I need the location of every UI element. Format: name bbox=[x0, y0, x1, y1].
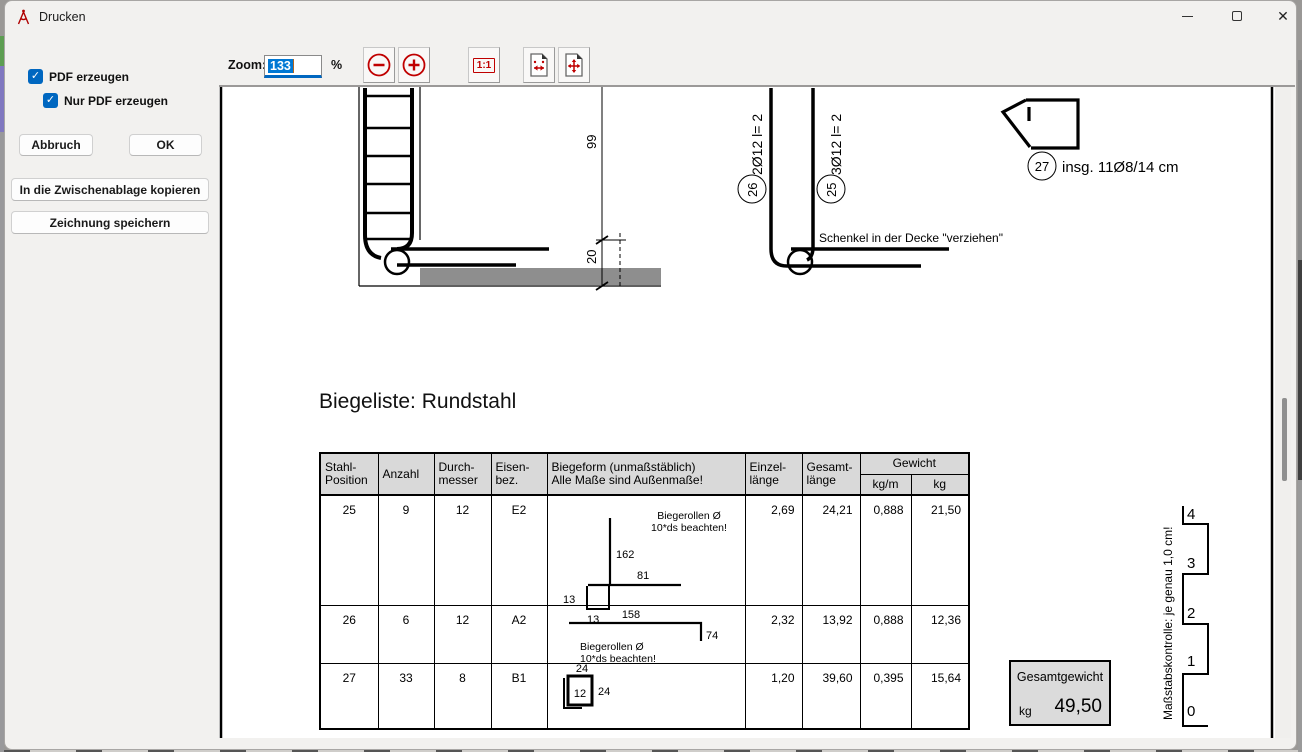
scale-tick: 3 bbox=[1187, 555, 1195, 572]
position-25-circle bbox=[817, 175, 845, 203]
close-icon: ✕ bbox=[1277, 8, 1289, 25]
biegeform-cell bbox=[547, 495, 745, 605]
app-icon bbox=[15, 8, 32, 27]
table-row: 27 33 8 B1 1,20 39,60 0,395 15,64 bbox=[320, 663, 969, 729]
zoom-input[interactable]: 133 bbox=[264, 55, 322, 78]
header-stahl-position: Stahl-Position bbox=[320, 453, 378, 495]
fit-width-button[interactable] bbox=[523, 47, 555, 83]
background-app-right3 bbox=[1298, 480, 1302, 752]
fit-page-icon bbox=[562, 51, 586, 79]
scale-control-steps bbox=[1183, 506, 1208, 726]
total-weight-value: 49,50 bbox=[1054, 696, 1102, 718]
window-title: Drucken bbox=[39, 10, 86, 24]
minimize-button[interactable] bbox=[1167, 1, 1207, 31]
dim-20-label: 20 bbox=[584, 250, 599, 264]
close-button[interactable]: ✕ bbox=[1263, 1, 1297, 31]
one-to-one-icon: 1:1 bbox=[473, 58, 495, 73]
header-kg-m: kg/m bbox=[860, 474, 911, 495]
header-gewicht: Gewicht bbox=[860, 453, 969, 474]
position-27-circle bbox=[1028, 152, 1056, 180]
position-26-label: 2Ø12 l= 2 bbox=[749, 114, 765, 175]
vertical-scrollbar[interactable] bbox=[1275, 87, 1291, 738]
actual-size-button[interactable]: 1:1 bbox=[468, 47, 500, 83]
position-25-label: 3Ø12 l= 2 bbox=[828, 114, 844, 175]
print-preview-area: Biegeliste: Rundstahl Stahl-Position Anz… bbox=[219, 87, 1275, 738]
zoom-value: 133 bbox=[268, 59, 293, 73]
zoom-label: Zoom: bbox=[228, 58, 266, 72]
ok-button[interactable]: OK bbox=[129, 134, 202, 156]
position-26-circle bbox=[738, 175, 766, 203]
dimension-lines bbox=[596, 87, 626, 290]
rebar-bars bbox=[771, 88, 949, 274]
zoom-in-icon bbox=[401, 52, 427, 78]
table-header: Stahl-Position Anzahl Durch-messer Eisen… bbox=[320, 453, 969, 495]
copy-to-clipboard-button[interactable]: In die Zwischenablage kopieren bbox=[11, 178, 209, 201]
header-anzahl: Anzahl bbox=[378, 453, 434, 495]
total-weight-label: Gesamtgewicht bbox=[1011, 670, 1109, 684]
checkbox-nur-pdf-erzeugen[interactable]: ✓ bbox=[43, 93, 58, 108]
checkbox-pdf-erzeugen[interactable]: ✓ bbox=[28, 69, 43, 84]
position-27-number: 27 bbox=[1035, 159, 1049, 174]
checkbox-nur-pdf-erzeugen-label: Nur PDF erzeugen bbox=[64, 94, 168, 108]
scale-tick: 0 bbox=[1187, 703, 1195, 720]
text-caret bbox=[293, 59, 294, 73]
maximize-icon bbox=[1232, 11, 1242, 21]
schenkel-note: Schenkel in der Decke "verziehen" bbox=[819, 231, 1003, 245]
header-gesamtlaenge: Gesamt-länge bbox=[802, 453, 860, 495]
zoom-out-icon bbox=[366, 52, 392, 78]
position-26-number: 26 bbox=[745, 183, 760, 197]
stirrup-shape bbox=[1003, 100, 1078, 148]
bending-list-table: Stahl-Position Anzahl Durch-messer Eisen… bbox=[319, 452, 970, 730]
minimize-icon bbox=[1182, 16, 1193, 17]
wall-section bbox=[359, 87, 661, 286]
header-kg: kg bbox=[911, 474, 969, 495]
fit-page-button[interactable] bbox=[558, 47, 590, 83]
biegeform-cell bbox=[547, 605, 745, 663]
percent-label: % bbox=[331, 58, 342, 72]
dim-99-label: 99 bbox=[584, 135, 599, 149]
vertical-scrollbar-thumb[interactable] bbox=[1282, 398, 1287, 481]
zoom-in-button[interactable] bbox=[398, 47, 430, 83]
header-durchmesser: Durch-messer bbox=[434, 453, 491, 495]
maximize-button[interactable] bbox=[1217, 1, 1257, 31]
save-drawing-button[interactable]: Zeichnung speichern bbox=[11, 211, 209, 234]
header-einzellaenge: Einzel-länge bbox=[745, 453, 802, 495]
background-app-right bbox=[1298, 60, 1302, 260]
checkbox-pdf-erzeugen-label: PDF erzeugen bbox=[49, 70, 129, 84]
abort-button[interactable]: Abbruch bbox=[19, 134, 93, 156]
header-eisenbez: Eisen-bez. bbox=[491, 453, 547, 495]
scale-tick: 1 bbox=[1187, 653, 1195, 670]
fit-width-icon bbox=[527, 51, 551, 79]
scale-control-label: Maßstabskontrolle: je genau 1,0 cm! bbox=[1161, 527, 1175, 720]
position-25-number: 25 bbox=[824, 183, 839, 197]
table-row: 25 9 12 E2 2,69 24,21 0,888 21,50 bbox=[320, 495, 969, 605]
total-weight-box: Gesamtgewicht kg 49,50 bbox=[1009, 660, 1111, 726]
scale-tick: 2 bbox=[1187, 605, 1195, 622]
background-app-right2 bbox=[1298, 260, 1302, 480]
biegeform-cell bbox=[547, 663, 745, 729]
scale-tick: 4 bbox=[1187, 506, 1195, 523]
table-row: 26 6 12 A2 2,32 13,92 0,888 12,36 bbox=[320, 605, 969, 663]
position-27-label: insg. 11Ø8/14 cm bbox=[1062, 159, 1178, 176]
total-weight-unit: kg bbox=[1019, 704, 1032, 718]
header-biegeform: Biegeform (unmaßstäblich)Alle Maße sind … bbox=[547, 453, 745, 495]
print-dialog-window: Drucken ✕ ✓ PDF erzeugen ✓ Nur PDF erzeu… bbox=[4, 0, 1297, 750]
bending-list-title: Biegeliste: Rundstahl bbox=[319, 390, 516, 414]
zoom-out-button[interactable] bbox=[363, 47, 395, 83]
slab-hatch bbox=[420, 268, 661, 285]
